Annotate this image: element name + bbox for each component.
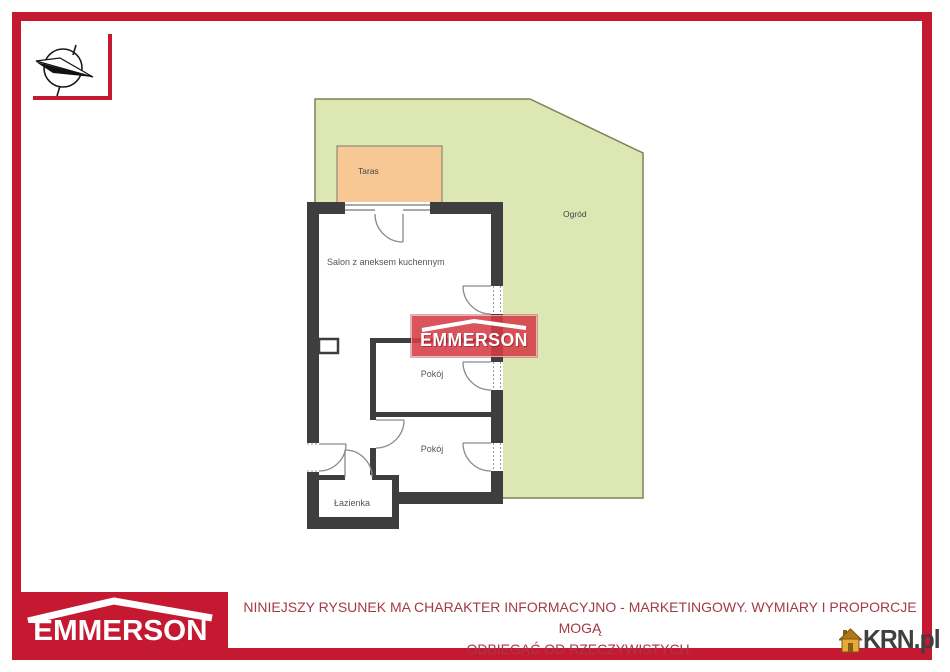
terrace-label: Taras [358,166,379,176]
disclaimer-line1: NINIEJSZY RYSUNEK MA CHARAKTER INFORMACY… [235,597,925,639]
floorplan-page: Ogród Taras [0,0,950,672]
terrace-area [337,146,442,203]
garden-label: Ogród [563,209,587,219]
wall-duct-notch [319,339,338,353]
frame-right-border [922,12,932,660]
room2-label: Pokój [421,444,444,454]
disclaimer-text: NINIEJSZY RYSUNEK MA CHARAKTER INFORMACY… [235,597,925,643]
house-icon [839,627,862,653]
disclaimer-line2: ODBIEGAĆ OD RZECZYWISTYCH. [235,639,925,660]
footer-brand-text: EMMERSON [33,617,207,646]
krn-label: KRN.pl [863,625,940,653]
room1-label: Pokój [421,369,444,379]
watermark-brand-text: EMMERSON [420,331,528,349]
footer-logo: EMMERSON [12,592,228,660]
watermark-banner: EMMERSON [411,315,537,357]
salon-label: Salon z aneksem kuchennym [327,257,445,267]
krn-watermark: KRN.pl [839,625,944,653]
bathroom-label: Łazienka [334,498,370,508]
